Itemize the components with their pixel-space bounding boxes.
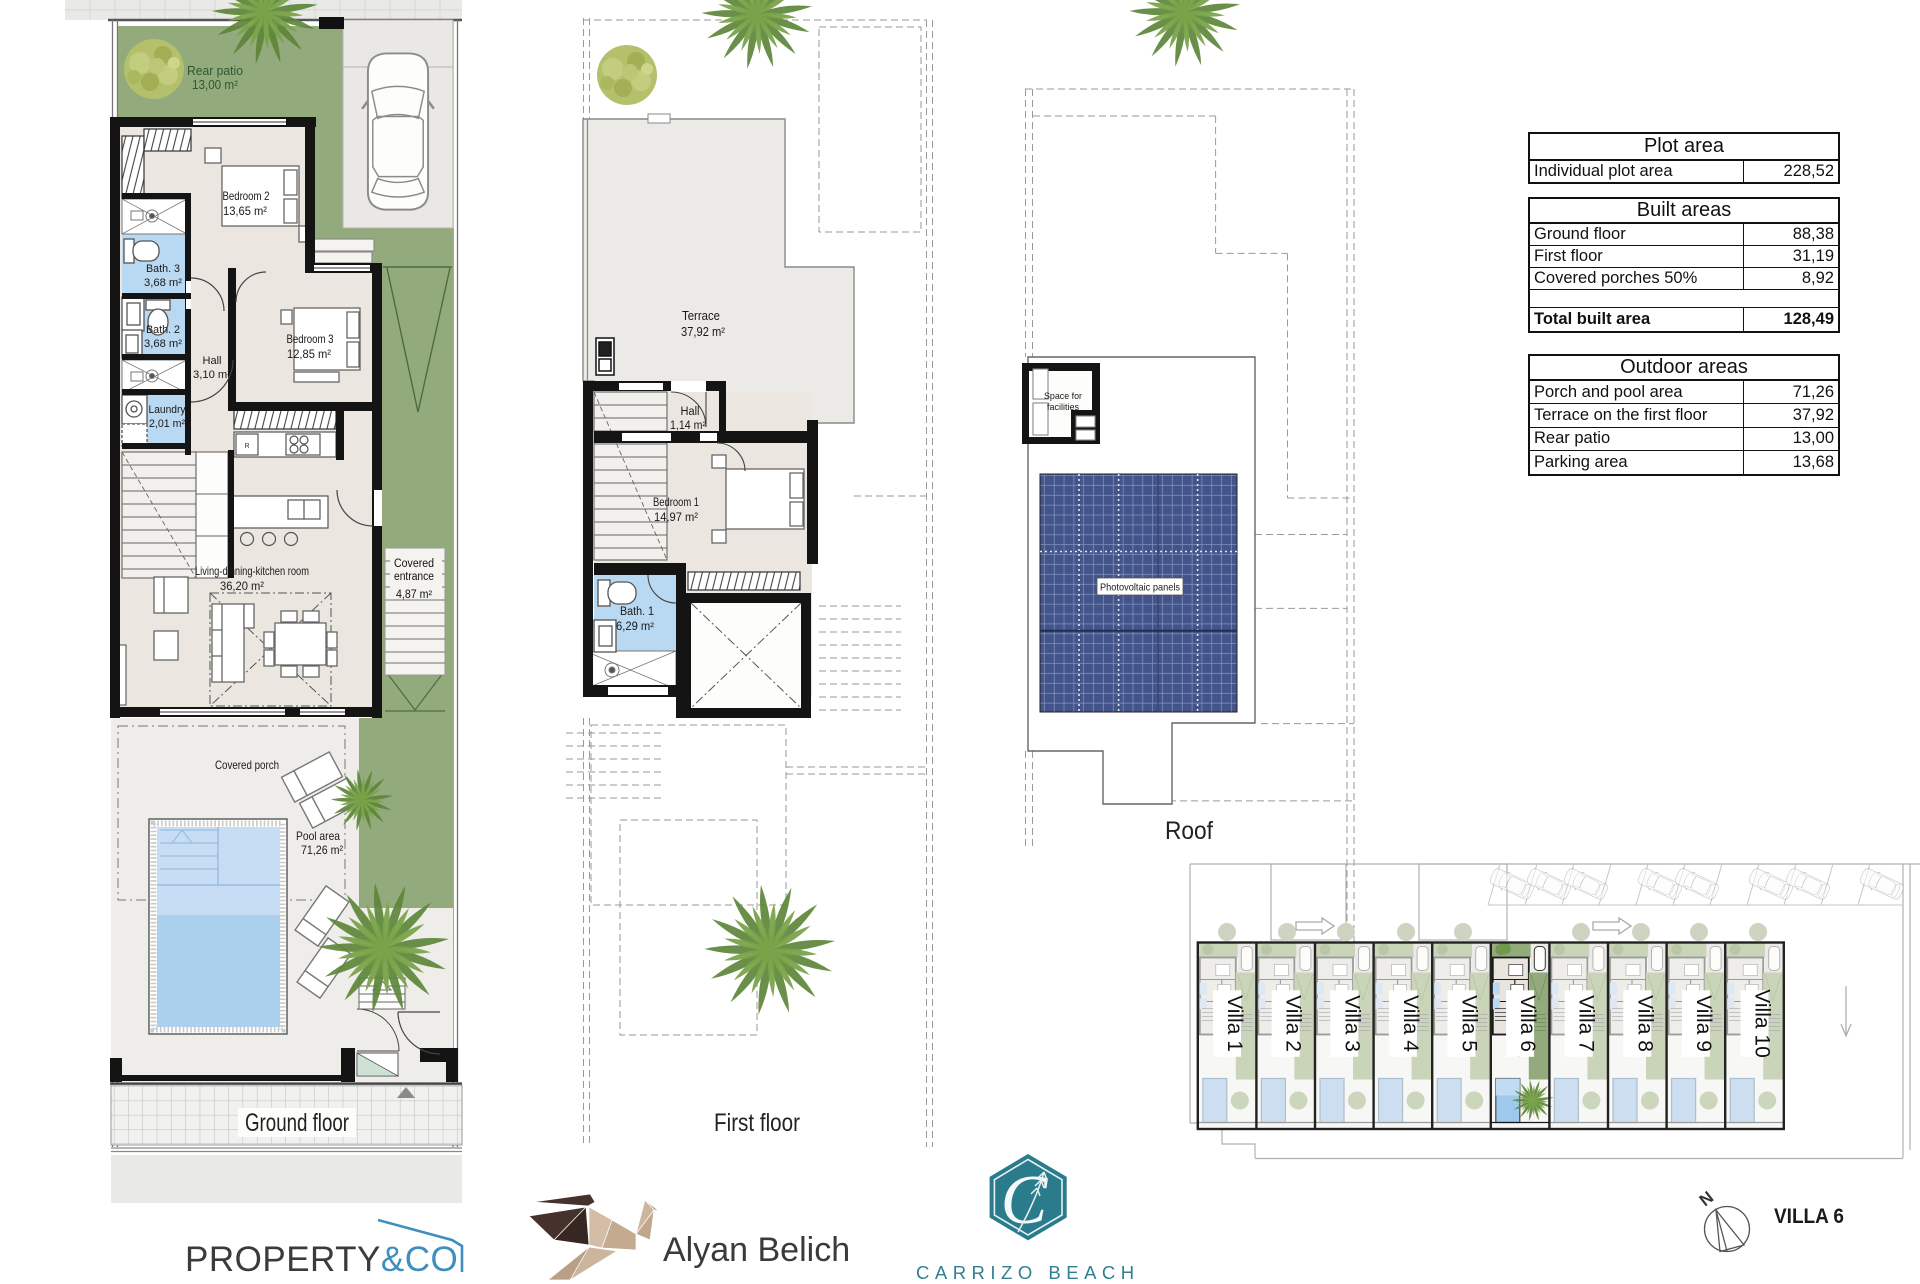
svg-text:71,26 m²: 71,26 m² — [301, 843, 343, 857]
svg-text:37,92 m²: 37,92 m² — [681, 325, 725, 339]
svg-text:12,85 m²: 12,85 m² — [287, 347, 331, 361]
svg-text:Villa 2: Villa 2 — [1282, 995, 1305, 1052]
svg-text:Villa 4: Villa 4 — [1399, 995, 1422, 1052]
svg-text:Villa 6: Villa 6 — [1516, 995, 1539, 1052]
svg-text:4,87 m²: 4,87 m² — [396, 589, 432, 601]
svg-text:Bedroom 1: Bedroom 1 — [653, 495, 699, 509]
svg-text:1,14 m²: 1,14 m² — [670, 420, 706, 432]
svg-text:3,68 m²: 3,68 m² — [144, 338, 182, 350]
svg-text:Terrace: Terrace — [682, 309, 720, 323]
svg-text:14,97 m²: 14,97 m² — [654, 510, 698, 524]
svg-text:facilities: facilities — [1047, 402, 1079, 413]
svg-text:Villa 8: Villa 8 — [1633, 995, 1656, 1052]
svg-text:First floor: First floor — [714, 1109, 800, 1137]
svg-text:Bath. 1: Bath. 1 — [620, 606, 654, 618]
svg-text:entrance: entrance — [394, 571, 434, 583]
svg-text:Covered: Covered — [394, 558, 434, 570]
svg-text:3,68 m²: 3,68 m² — [144, 277, 182, 289]
svg-text:Roof: Roof — [1165, 817, 1213, 845]
svg-text:Ground floor: Ground floor — [245, 1109, 349, 1137]
svg-text:6,29 m²: 6,29 m² — [616, 621, 654, 633]
svg-text:Hall: Hall — [681, 406, 700, 418]
svg-text:13,65 m²: 13,65 m² — [223, 204, 267, 218]
svg-text:13,00 m²: 13,00 m² — [192, 78, 238, 92]
svg-text:Villa 9: Villa 9 — [1692, 995, 1715, 1052]
svg-text:Villa 7: Villa 7 — [1575, 995, 1598, 1052]
svg-text:Bath. 2: Bath. 2 — [146, 324, 180, 336]
svg-text:Pool area: Pool area — [296, 829, 340, 843]
svg-text:Bath. 3: Bath. 3 — [146, 263, 180, 275]
svg-text:Villa 10: Villa 10 — [1751, 989, 1774, 1058]
svg-text:Photovoltaic panels: Photovoltaic panels — [1100, 582, 1180, 594]
svg-text:Covered porch: Covered porch — [215, 758, 279, 772]
svg-text:Villa 1: Villa 1 — [1223, 995, 1246, 1052]
svg-text:Villa 5: Villa 5 — [1458, 995, 1481, 1052]
svg-text:36,20 m²: 36,20 m² — [220, 579, 264, 593]
svg-text:Bedroom 3: Bedroom 3 — [287, 332, 334, 346]
svg-text:R: R — [244, 443, 249, 450]
svg-text:Hall: Hall — [203, 355, 222, 367]
svg-text:Bedroom 2: Bedroom 2 — [223, 189, 270, 203]
svg-text:Space for: Space for — [1044, 391, 1082, 402]
svg-text:Laundry: Laundry — [149, 404, 186, 416]
svg-text:Rear patio: Rear patio — [187, 64, 243, 78]
svg-text:Villa 3: Villa 3 — [1340, 995, 1363, 1052]
svg-text:3,10 m²: 3,10 m² — [193, 369, 231, 381]
svg-text:2,01 m²: 2,01 m² — [149, 418, 185, 430]
svg-text:Living-dinning-kitchen room: Living-dinning-kitchen room — [195, 564, 309, 578]
svg-text:VILLA 6: VILLA 6 — [1774, 1205, 1844, 1228]
